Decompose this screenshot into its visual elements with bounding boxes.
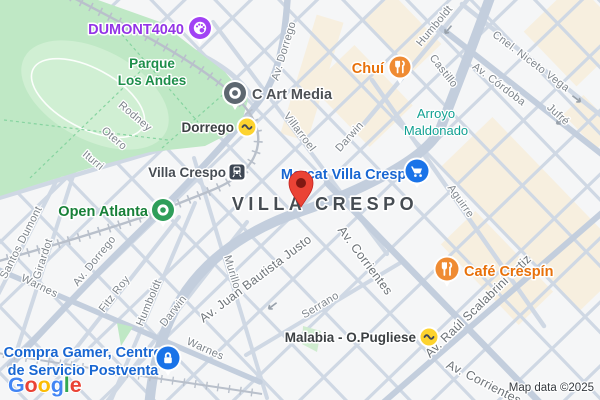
poi-label-cafe-crespin[interactable]: Café Crespín	[464, 264, 553, 280]
subway-icon[interactable]	[420, 328, 439, 347]
poi-label-dorrego[interactable]: Dorrego	[181, 120, 234, 135]
poi-malabia-station[interactable]: Malabia - O.Pugliese	[285, 328, 439, 347]
google-logo-letter[interactable]: g	[51, 373, 64, 397]
train-station-icon[interactable]	[229, 164, 246, 181]
poi-label-dumont4040[interactable]: DUMONT4040	[88, 22, 184, 38]
google-logo-letter[interactable]: o	[38, 373, 51, 397]
poi-villa-crespo-station[interactable]: Villa Crespo	[148, 164, 245, 181]
subway-icon[interactable]	[238, 118, 257, 137]
map-canvas[interactable]: Av. Dorrego Humboldt Castillo Cnel. Nice…	[0, 0, 600, 400]
poi-label-c-art-media[interactable]: C Art Media	[252, 87, 333, 103]
google-logo[interactable]: G o o g l e	[8, 373, 82, 397]
poi-label-villa-crespo-station[interactable]: Villa Crespo	[148, 165, 226, 180]
park-label-line1: Parque	[129, 56, 175, 71]
map-data-attribution: Map data ©2025	[509, 382, 594, 394]
park-label-line2: Los Andes	[118, 73, 187, 88]
poi-label-malabia[interactable]: Malabia - O.Pugliese	[285, 330, 417, 345]
google-logo-letter[interactable]: o	[25, 373, 38, 397]
neighborhood-label: VILLA CRESPO	[232, 194, 418, 214]
google-logo-letter[interactable]: e	[70, 373, 82, 397]
poi-label-compra-gamer-line1[interactable]: Compra Gamer, Centro	[4, 345, 163, 361]
water-label-line2: Maldonado	[404, 123, 468, 138]
poi-dorrego-station[interactable]: Dorrego	[181, 118, 256, 137]
poi-label-chui[interactable]: Chuí	[352, 61, 385, 77]
poi-label-open-atlanta[interactable]: Open Atlanta	[58, 204, 149, 220]
map-viewport[interactable]: Av. Dorrego Humboldt Castillo Cnel. Nice…	[0, 0, 600, 400]
google-logo-letter[interactable]: G	[8, 373, 25, 397]
water-label-line1: Arroyo	[417, 106, 455, 121]
